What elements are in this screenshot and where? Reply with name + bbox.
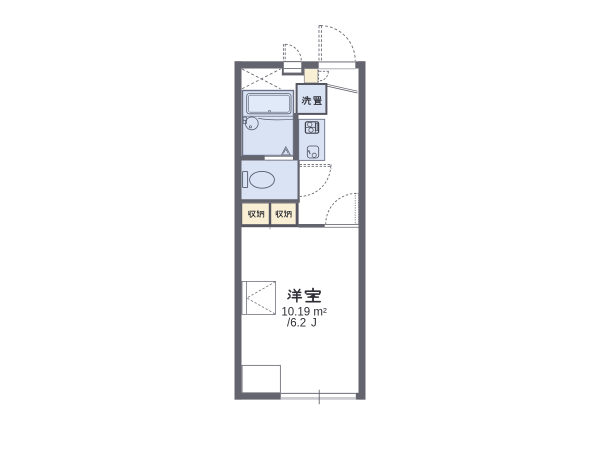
svg-text:/6.2J: /6.2J bbox=[287, 317, 317, 329]
